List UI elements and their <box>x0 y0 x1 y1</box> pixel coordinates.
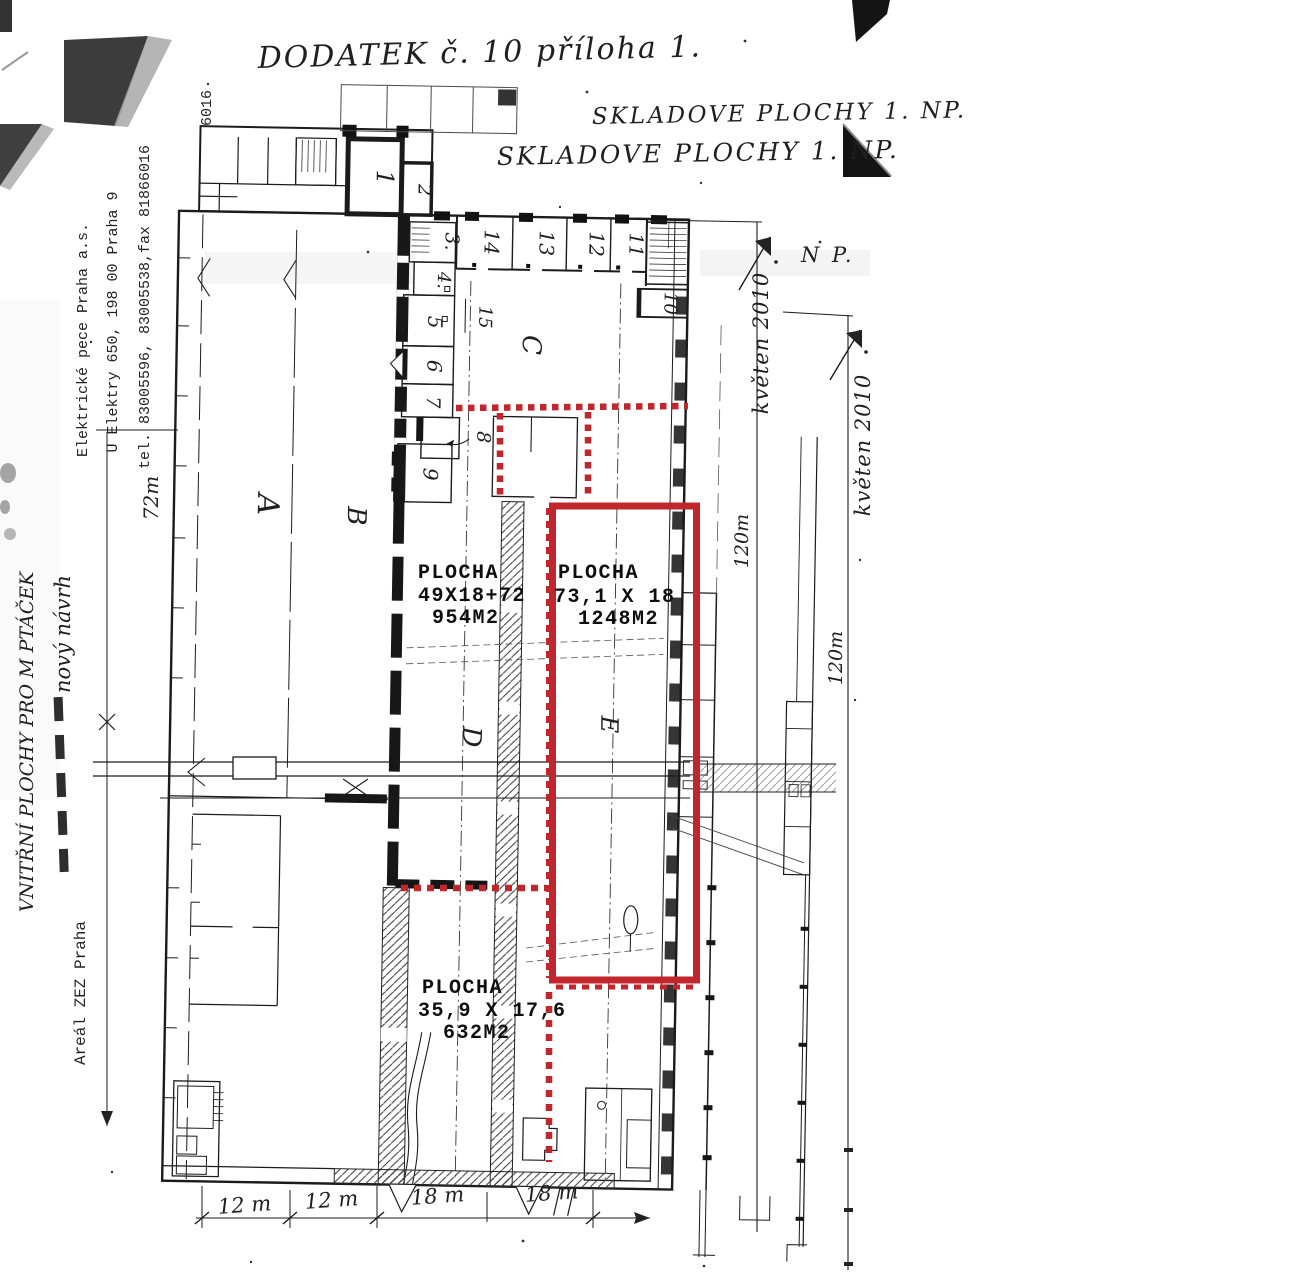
dim-length: 120m <box>825 631 847 685</box>
dim-date-note: květen 2010 <box>749 272 773 415</box>
room-label: 7 <box>422 396 444 409</box>
letterhead-phone: tel. 83005596, 83005538,fax 81866016 <box>137 145 154 469</box>
hall-label: E <box>595 714 623 733</box>
heavy-dashed-wall <box>392 500 399 886</box>
floor-plan-drawing: Elektrické pece Praha a.s. U Elektry 650… <box>0 0 1309 1273</box>
room-label: 13 <box>534 230 558 256</box>
letterhead-company: Elektrické pece Praha a.s. <box>75 223 92 457</box>
dim-bottom: 18 m <box>410 1182 465 1210</box>
area-name: PLOCHA <box>422 977 503 1000</box>
room-label: 11 <box>624 232 646 257</box>
room-label: 10 <box>659 292 680 315</box>
room-label: 2 <box>413 183 435 196</box>
dim-bottom: 12 m <box>304 1186 359 1214</box>
room-label: 4. <box>433 271 454 290</box>
letterhead-address: U Elektry 650, 198 00 Praha 9 <box>105 191 122 452</box>
room-label: 8 <box>472 431 494 443</box>
area-name: PLOCHA <box>558 562 639 585</box>
conveyor-box <box>233 757 276 779</box>
area-dimensions: 73,1 X 18 <box>554 586 676 609</box>
area-size: 1248M2 <box>578 608 659 631</box>
dim-length: 120m <box>731 514 753 568</box>
room-label: 12 <box>584 231 608 257</box>
dim-date-note: květen 2010 <box>851 374 875 517</box>
letterhead-site: Areál ZEZ Praha <box>72 921 90 1065</box>
dim-bottom: 18 m <box>524 1179 579 1207</box>
np-fragment: N P. <box>800 243 855 267</box>
hall-label: D <box>456 725 486 748</box>
dim-left-height: 72m <box>139 476 163 520</box>
dim-bottom: 12 m <box>217 1191 272 1219</box>
room-label: 9 <box>418 468 442 481</box>
room-label: 3. <box>440 232 462 251</box>
room-label: 1 <box>371 170 399 186</box>
area-name: PLOCHA <box>418 562 499 585</box>
paper-background <box>0 0 1309 1273</box>
room-label: 15 <box>474 306 495 329</box>
area-size: 954M2 <box>432 607 500 630</box>
letterhead-fragment: 6016 <box>199 90 216 126</box>
room-label: 5 <box>423 316 447 329</box>
area-dimensions: 49X18+72 <box>418 585 526 608</box>
hall-label: C <box>516 335 546 356</box>
hall-label: B <box>341 505 371 526</box>
room-label: 6 <box>422 360 446 373</box>
note-vnitrni: VNITŘNÍ PLOCHY PRO M PTÁČEK <box>15 570 38 912</box>
area-size: 632M2 <box>443 1022 511 1045</box>
hall-label: A <box>250 490 285 515</box>
note-novy-navrh: nový návrh <box>51 575 75 693</box>
area-dimensions: 35,9 X 17,6 <box>418 1000 567 1023</box>
scanned-floor-plan-page: Elektrické pece Praha a.s. U Elektry 650… <box>0 0 1309 1273</box>
room-label: 14 <box>479 229 503 255</box>
